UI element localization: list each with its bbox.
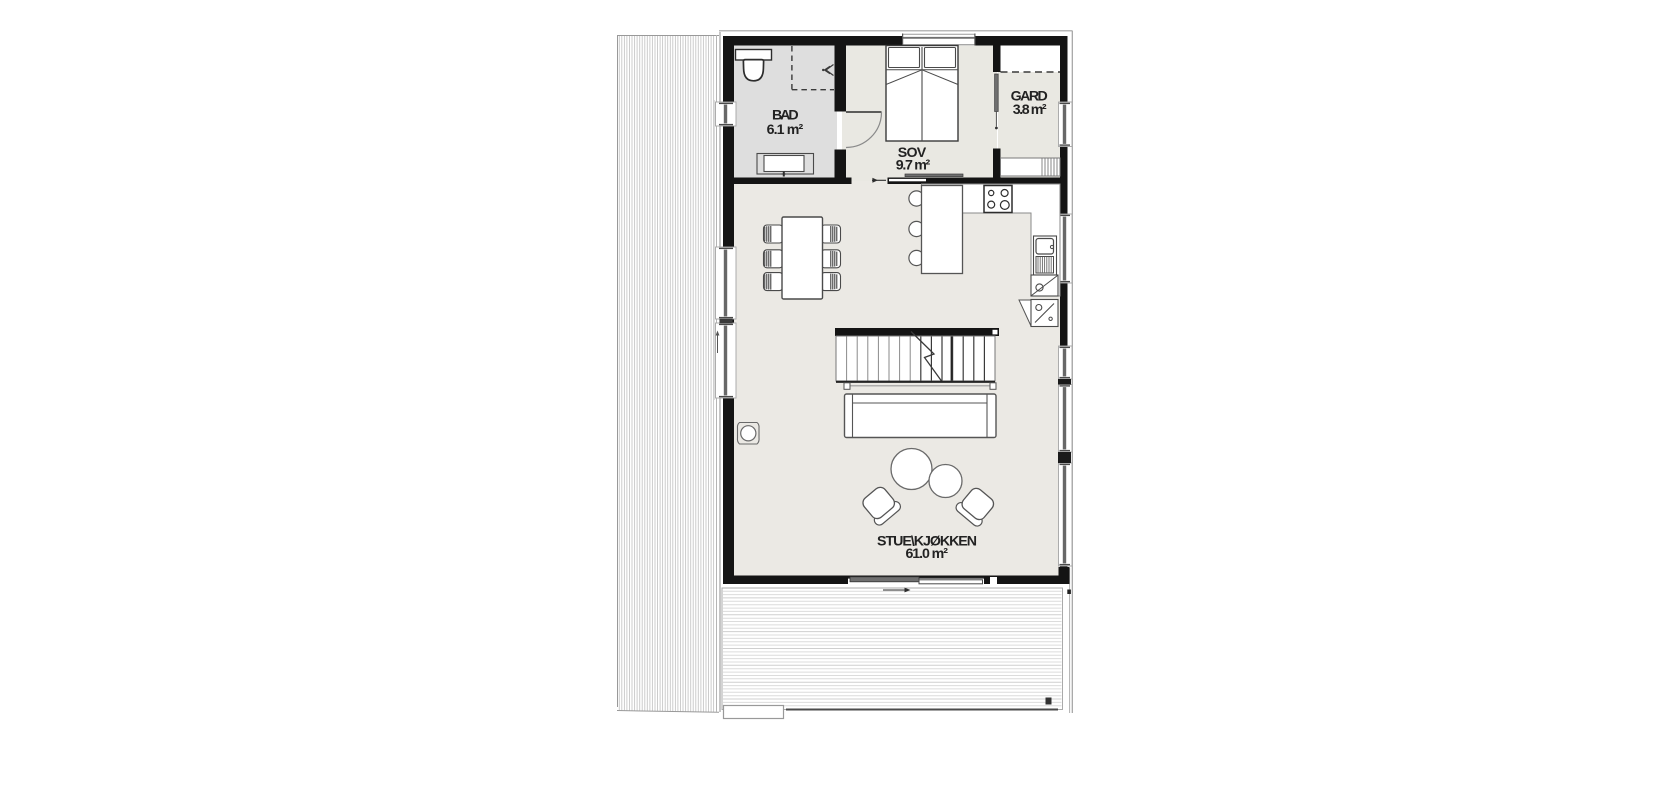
svg-text:3.8 m²: 3.8 m² <box>1013 102 1047 118</box>
svg-text:61.0 m²: 61.0 m² <box>905 546 948 562</box>
svg-text:9.7 m²: 9.7 m² <box>896 158 931 174</box>
svg-text:6.1 m²: 6.1 m² <box>767 122 804 138</box>
